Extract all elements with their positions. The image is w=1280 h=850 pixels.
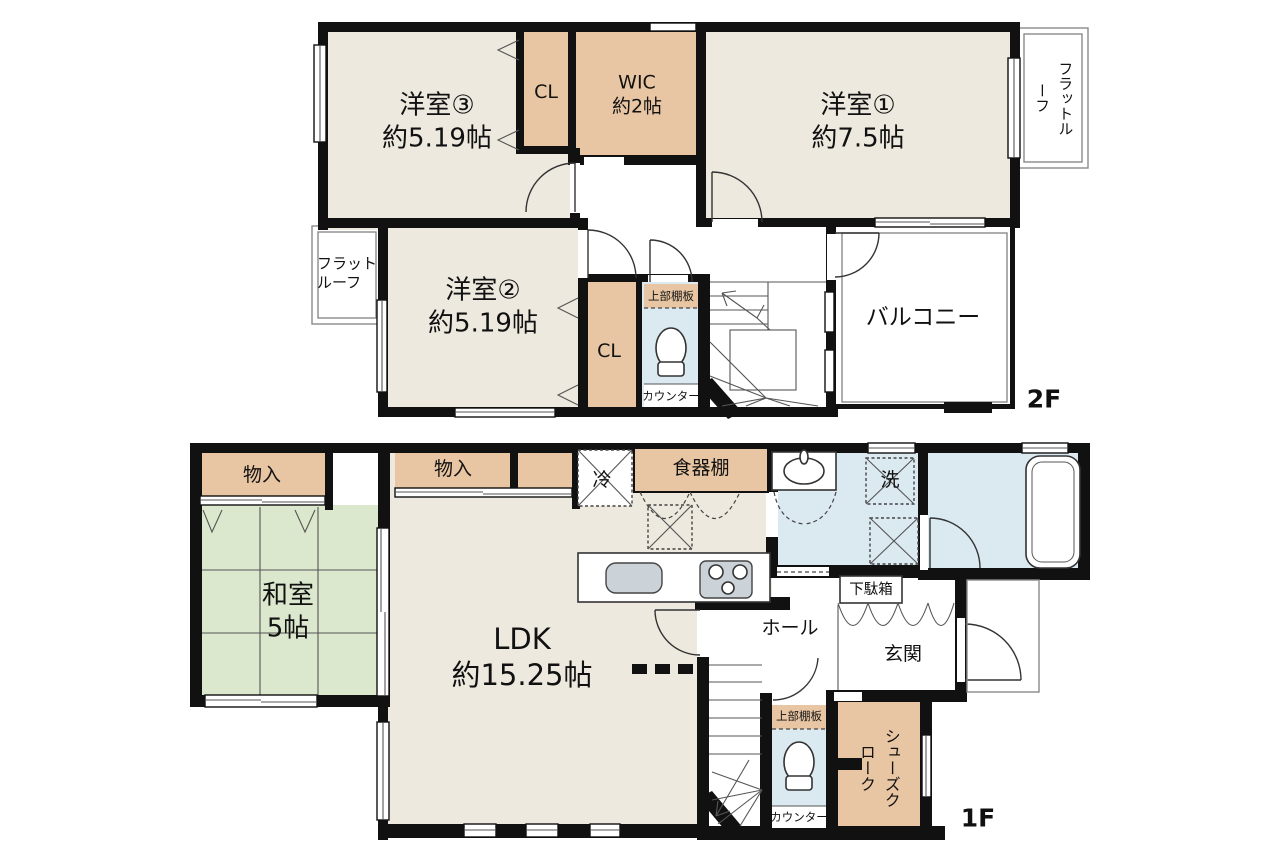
genkan-label: 玄関 [884,643,922,667]
storage-label-left: 物入 [243,464,281,488]
room-size: 約15.25帖 [451,657,592,693]
getabako-label: 下駄箱 [849,581,893,599]
toilet2f-shelf-label: 上部棚板 [648,289,694,303]
flat-roof-left-label: フラット ルーフ [317,254,377,292]
room-name: 洋室③ [382,90,492,123]
room-name: WIC [612,71,662,95]
toilet1f-shelf-label: 上部棚板 [776,709,822,723]
toilet2f-counter-label: カウンター [642,389,700,403]
room-label-yoshitsu1: 洋室① 約7.5帖 [811,90,904,155]
room-label-wic: WIC 約2帖 [612,71,662,119]
room-label-yoshitsu2: 洋室② 約5.19帖 [428,275,538,340]
cupboard-label: 食器棚 [672,457,729,481]
floor1-tag: 1F [961,802,995,833]
stairs-2f [710,282,826,406]
room-label-ldk: LDK 約15.25帖 [451,621,592,694]
room-label-washitsu: 和室 5帖 [262,580,314,645]
storage-label-mid: 物入 [434,458,472,482]
room-name: 洋室① [811,90,904,123]
floorplan: 洋室③ 約5.19帖 CL WIC 約2帖 洋室① 約7.5帖 フラットルーフ … [0,0,1280,850]
room-size: 約5.19帖 [382,122,492,155]
toilet1f-counter-label: カウンター [770,810,828,824]
shoes-cloak-label: シューズクローク [853,725,903,811]
room-size: 約2帖 [612,95,662,119]
hall-label: ホール [761,617,818,641]
fridge-label: 冷 [592,469,611,493]
room-name: LDK [451,621,592,657]
room-name: 和室 [262,580,314,613]
closet-label-cl2: CL [597,340,621,364]
room-name: 洋室② [428,275,538,308]
room-size: 約5.19帖 [428,307,538,340]
floor1-plan [190,443,1090,840]
floorplan-drawing [0,0,1280,850]
floor2-plan [312,22,1088,419]
closet-label-cl-top: CL [534,81,558,105]
laundry-label: 洗 [880,469,899,493]
room-label-yoshitsu3: 洋室③ 約5.19帖 [382,90,492,155]
flat-roof-right-label: フラットルーフ [1030,55,1077,141]
floor2-tag: 2F [1027,383,1061,414]
room-size: 5帖 [262,612,314,645]
room-size: 約7.5帖 [811,122,904,155]
balcony-label: バルコニー [866,304,981,333]
